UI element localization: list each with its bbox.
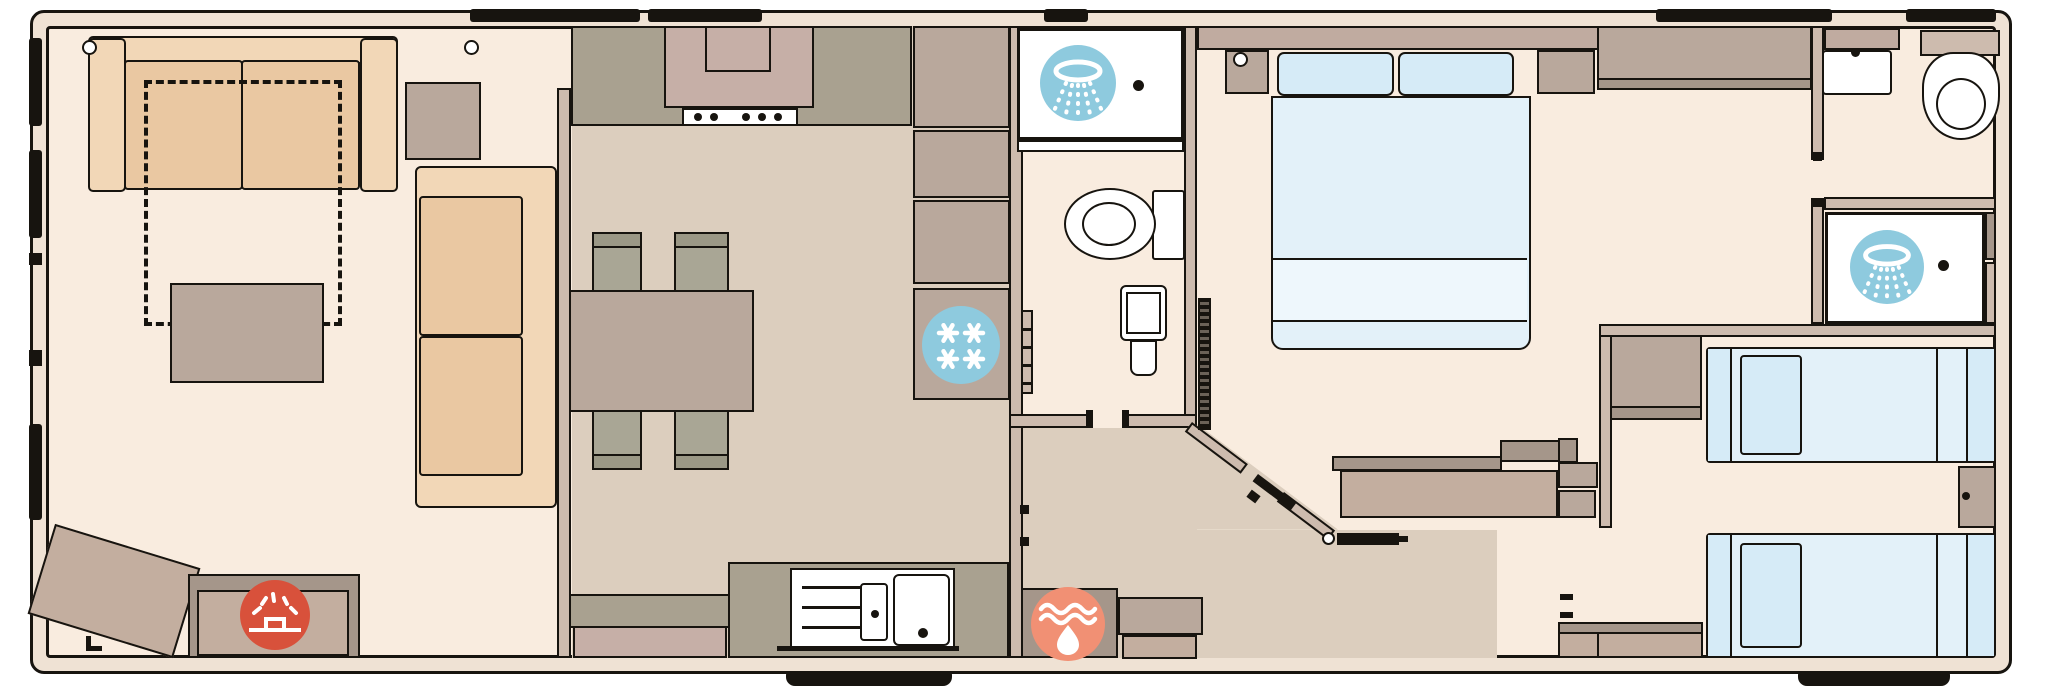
shower-icon: [1850, 230, 1924, 304]
door-mark: [1560, 612, 1573, 618]
hall-step-unit: [1118, 597, 1203, 635]
bed-fold-line: [1936, 349, 1938, 461]
wash-basin: [1822, 50, 1892, 95]
basin-tap: [1851, 48, 1860, 57]
door-mark: [1813, 198, 1822, 207]
chest-of-drawers: [1558, 632, 1703, 658]
hob-knob: [694, 113, 702, 121]
bedroom-seat: [1340, 470, 1558, 518]
sofa-arm: [360, 38, 398, 192]
tall-cupboard: [913, 200, 1010, 284]
window-mark: [1044, 9, 1088, 22]
dining-table: [569, 290, 754, 412]
hallway-floor: [1197, 530, 1497, 658]
dining-chair: [674, 246, 729, 294]
double-bed-pillow: [1277, 52, 1394, 96]
wall-bathroom-bottom: [1122, 414, 1197, 428]
window-mark: [648, 9, 762, 22]
bed-pillow: [1740, 355, 1802, 455]
door-mark: [1122, 410, 1129, 428]
sofa-arm: [88, 38, 126, 192]
wall-lounge-diner: [557, 88, 571, 658]
drawer-divider: [1597, 634, 1599, 656]
dressing-step: [1558, 462, 1598, 488]
dining-chair: [674, 454, 729, 470]
overhead-locker: [1824, 28, 1900, 50]
radiator: [1337, 533, 1399, 545]
cooker-hood: [705, 26, 771, 72]
door-mark: [1086, 410, 1093, 428]
tall-cupboard: [913, 26, 1010, 128]
double-bed: [1271, 96, 1531, 350]
coffee-table: [170, 283, 324, 383]
dressing-step: [1558, 490, 1596, 518]
wardrobe-front: [1597, 78, 1812, 90]
hall-step-unit: [1122, 635, 1197, 659]
door-mark: [1020, 505, 1029, 514]
hob-knob: [774, 113, 782, 121]
shower-tray-edge: [1017, 140, 1184, 152]
window-mark: [29, 38, 42, 126]
door-mark: [86, 636, 91, 646]
shower-drain: [1938, 260, 1949, 271]
bed-fold: [1966, 349, 1994, 461]
electric-fire-icon: [240, 580, 310, 650]
dining-chair: [592, 410, 642, 458]
radiator-valve: [1399, 536, 1408, 542]
shower-icon: [1040, 45, 1116, 121]
sofa-seat-cushion: [419, 196, 523, 336]
cabinet-handle: [1962, 492, 1970, 500]
window-mark: [29, 350, 42, 366]
curtain-hook-icon: [1233, 52, 1248, 67]
door-mark: [1560, 594, 1573, 600]
bed-fold: [1966, 535, 1994, 656]
curtain-hook-icon: [464, 40, 479, 55]
wall-master-twin: [1599, 330, 1612, 528]
dining-chair: [592, 246, 642, 294]
bedroom-seat-back: [1332, 456, 1502, 471]
radiator-valve: [1322, 532, 1335, 545]
bed-throw: [1273, 258, 1527, 322]
double-bed-pillow: [1398, 52, 1514, 96]
storage-bench: [568, 594, 737, 628]
freezer-icon: [922, 306, 1000, 384]
wardrobe: [1610, 333, 1702, 411]
bedroom-radiator: [1198, 298, 1211, 430]
window-mark: [1656, 9, 1832, 22]
bed-headboard: [1708, 349, 1732, 461]
door-mark: [1020, 537, 1029, 546]
wall-ensuite-left: [1811, 198, 1824, 324]
window-mark: [1906, 9, 1996, 22]
basin-pedestal: [1130, 340, 1157, 376]
wall-ensuite-wc-bottom: [1824, 197, 1996, 210]
bedside-cabinet: [1537, 50, 1595, 94]
curtain-hook-icon: [82, 40, 97, 55]
shower-side-unit: [1985, 262, 1996, 324]
wall-bathroom-right: [1184, 26, 1197, 428]
window-mark: [470, 9, 640, 22]
sofa-seat-cushion: [419, 336, 523, 476]
single-bed: [1706, 533, 1996, 658]
tall-cupboard: [913, 130, 1010, 198]
kitchen-sink: [790, 568, 955, 648]
towel-radiator: [1021, 310, 1033, 394]
window-mark: [29, 150, 42, 238]
hob-knob: [742, 113, 750, 121]
shower-side-unit: [1985, 212, 1996, 260]
shower-drain: [1133, 80, 1144, 91]
door-mark: [1813, 152, 1822, 161]
toilet-bowl-inner: [1082, 202, 1136, 246]
dining-chair: [592, 454, 642, 470]
storage-bench-cushion: [573, 626, 727, 658]
side-table: [405, 82, 481, 160]
wall-bathroom-bottom: [1009, 414, 1093, 428]
toilet-bowl-inner: [1936, 78, 1986, 130]
wash-basin-inner: [1126, 292, 1161, 334]
hob-knob: [710, 113, 718, 121]
bed-fold-line: [1936, 535, 1938, 656]
bed-headboard: [1708, 535, 1732, 656]
sofa-small: [415, 166, 557, 508]
window-mark: [29, 253, 42, 265]
wall-twin-top: [1599, 324, 1996, 337]
dressing-step: [1558, 438, 1578, 463]
hob-knob: [758, 113, 766, 121]
single-bed: [1706, 347, 1996, 463]
floorplan-stage: [0, 0, 2048, 691]
overhead-locker: [1197, 26, 1606, 50]
dining-chair: [674, 410, 729, 458]
wardrobe-front: [1610, 406, 1702, 420]
toilet-cistern: [1152, 190, 1185, 260]
bed-pillow: [1740, 543, 1802, 648]
boiler-icon: [1031, 587, 1105, 661]
door-mark: [86, 646, 102, 651]
window-mark: [29, 424, 42, 520]
